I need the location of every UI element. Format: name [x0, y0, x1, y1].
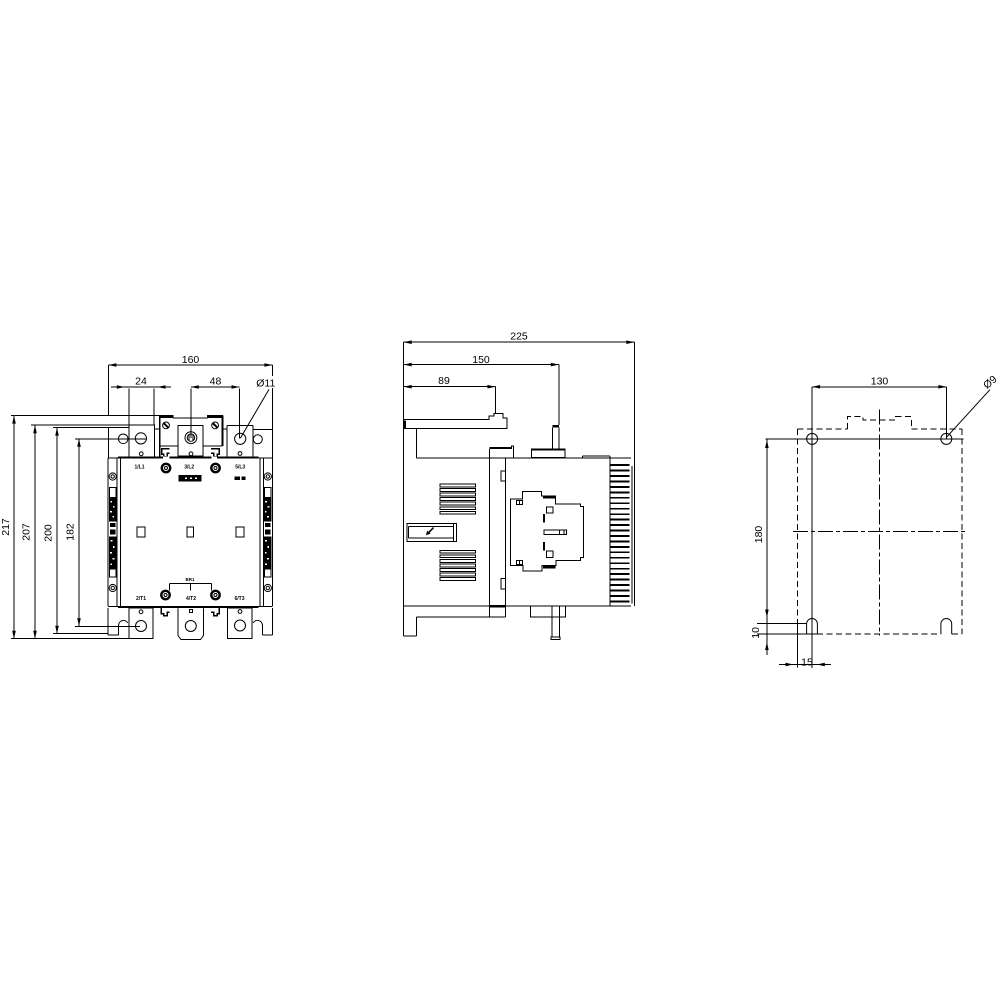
svg-text:4/T2: 4/T2: [186, 596, 196, 602]
svg-text:15: 15: [801, 656, 813, 668]
svg-text:217: 217: [0, 518, 12, 536]
svg-text:150: 150: [472, 354, 490, 366]
svg-text:Ø9: Ø9: [981, 373, 1000, 391]
svg-text:1/L1: 1/L1: [134, 465, 144, 471]
svg-text:3/L2: 3/L2: [184, 465, 194, 471]
svg-text:180: 180: [753, 526, 765, 544]
svg-text:225: 225: [510, 331, 528, 343]
svg-text:89: 89: [438, 375, 450, 387]
svg-text:182: 182: [65, 523, 77, 541]
svg-text:Ø11: Ø11: [256, 378, 275, 390]
svg-text:5/L3: 5/L3: [235, 465, 245, 471]
svg-text:6/T3: 6/T3: [234, 596, 244, 602]
svg-text:2/T1: 2/T1: [136, 596, 146, 602]
svg-text:130: 130: [871, 376, 889, 388]
svg-text:10: 10: [750, 627, 762, 639]
svg-text:200: 200: [43, 524, 55, 542]
svg-text:BR1: BR1: [185, 577, 194, 582]
svg-text:160: 160: [182, 354, 200, 366]
svg-text:48: 48: [210, 376, 222, 388]
svg-text:207: 207: [21, 523, 33, 541]
svg-text:24: 24: [135, 376, 147, 388]
